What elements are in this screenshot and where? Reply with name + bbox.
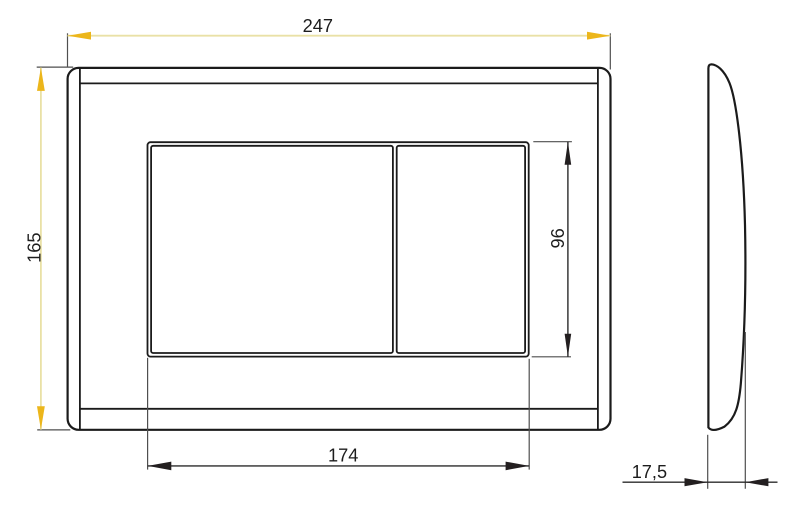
- svg-text:96: 96: [548, 228, 568, 248]
- svg-text:247: 247: [303, 16, 333, 36]
- svg-text:165: 165: [24, 233, 44, 263]
- svg-text:174: 174: [328, 446, 358, 466]
- svg-text:17,5: 17,5: [632, 462, 667, 482]
